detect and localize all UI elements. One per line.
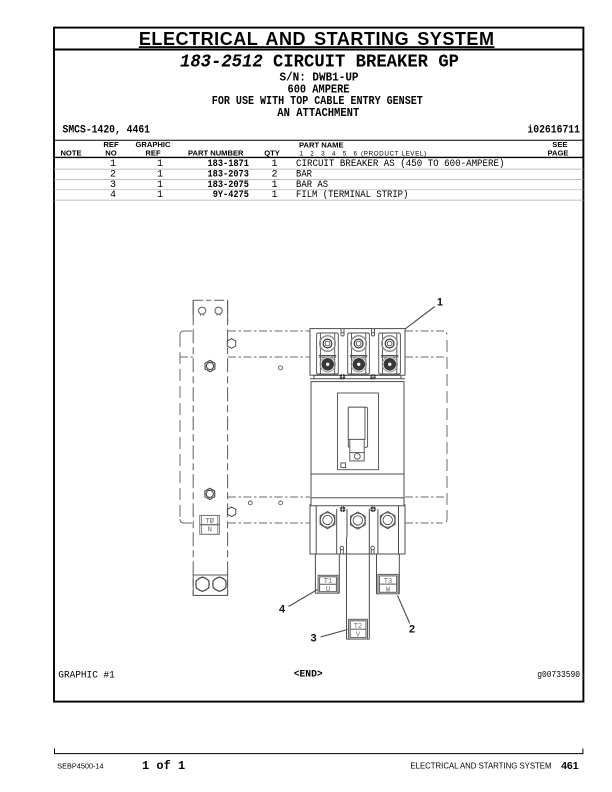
svg-text:i02616711: i02616711 [527, 125, 580, 137]
svg-text:1: 1 [437, 297, 443, 309]
svg-text:461: 461 [561, 760, 579, 772]
svg-text:9Y-4275: 9Y-4275 [213, 190, 249, 201]
svg-text:g00733590: g00733590 [537, 669, 580, 680]
svg-text:2: 2 [271, 170, 277, 181]
svg-text:REF: REF [145, 148, 161, 157]
svg-text:PAGE: PAGE [548, 148, 569, 157]
svg-text:3: 3 [311, 633, 317, 645]
svg-text:PART NAME: PART NAME [299, 140, 344, 149]
svg-text:1: 1 [157, 190, 163, 201]
svg-text:N: N [208, 527, 212, 535]
svg-text:1 of 1: 1 of 1 [142, 759, 185, 773]
svg-text:NO: NO [105, 148, 116, 157]
svg-text:FILM (TERMINAL STRIP): FILM (TERMINAL STRIP) [296, 189, 408, 201]
svg-text:TØ: TØ [206, 517, 214, 526]
svg-text:<END>: <END> [294, 669, 323, 681]
svg-text:T3: T3 [384, 578, 392, 586]
svg-text:BAR: BAR [296, 170, 312, 181]
svg-text:T2: T2 [354, 623, 362, 631]
svg-text:183-2512 CIRCUIT BREAKER GP: 183-2512 CIRCUIT BREAKER GP [180, 53, 459, 73]
svg-text:ELECTRICAL AND STARTING SYSTEM: ELECTRICAL AND STARTING SYSTEM [410, 762, 551, 771]
svg-text:4: 4 [110, 190, 116, 201]
svg-text:T1: T1 [324, 578, 332, 586]
svg-text:AN ATTACHMENT: AN ATTACHMENT [277, 106, 359, 120]
svg-text:GRAPHIC #1: GRAPHIC #1 [58, 670, 115, 682]
svg-text:PART NUMBER: PART NUMBER [188, 148, 244, 157]
svg-text:2: 2 [409, 624, 415, 636]
svg-text:SEBP4500-14: SEBP4500-14 [57, 762, 103, 771]
svg-text:CIRCUIT BREAKER AS (450 TO 600: CIRCUIT BREAKER AS (450 TO 600-AMPERE) [296, 158, 505, 170]
svg-text:NOTE: NOTE [60, 148, 81, 157]
svg-text:1: 1 [157, 170, 163, 181]
svg-text:QTY: QTY [264, 148, 280, 157]
svg-text:4: 4 [279, 604, 286, 616]
svg-text:183-2073: 183-2073 [208, 170, 249, 181]
svg-text:U: U [326, 586, 330, 594]
svg-text:SMCS-1420, 4461: SMCS-1420, 4461 [63, 125, 151, 137]
svg-text:2: 2 [110, 170, 116, 181]
svg-text:1: 1 [271, 190, 277, 201]
svg-text:ELECTRICAL AND STARTING SYSTEM: ELECTRICAL AND STARTING SYSTEM [139, 29, 495, 49]
